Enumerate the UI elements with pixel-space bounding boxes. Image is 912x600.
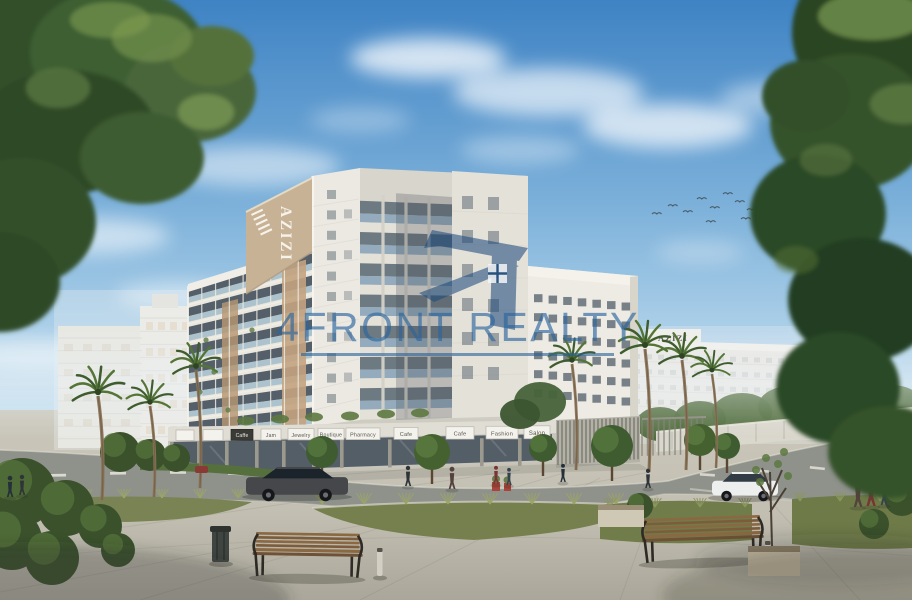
shop-sign-label: Jewelry (292, 433, 311, 439)
stone-planter (598, 505, 644, 527)
shop-sign-label: Cafe (400, 432, 412, 438)
shop-sign-label: Jam (266, 433, 276, 439)
azizi-main-sign-text: AZIZI (277, 206, 294, 262)
shop-sign-label: Pharmacy (350, 432, 376, 438)
shop-sign-label: Fashion (491, 431, 513, 437)
shop-sign-label: Cafe (454, 432, 467, 438)
scene: AZIZI AZIZI CaffeJamJewelryBoutiquePharm… (0, 0, 912, 600)
shop-sign-label: Caffe (236, 433, 249, 439)
shop-sign (176, 430, 194, 441)
shop-sign (203, 430, 223, 441)
distant-red-car (195, 466, 208, 473)
listing-photo: AZIZI AZIZI CaffeJamJewelryBoutiquePharm… (0, 0, 912, 600)
